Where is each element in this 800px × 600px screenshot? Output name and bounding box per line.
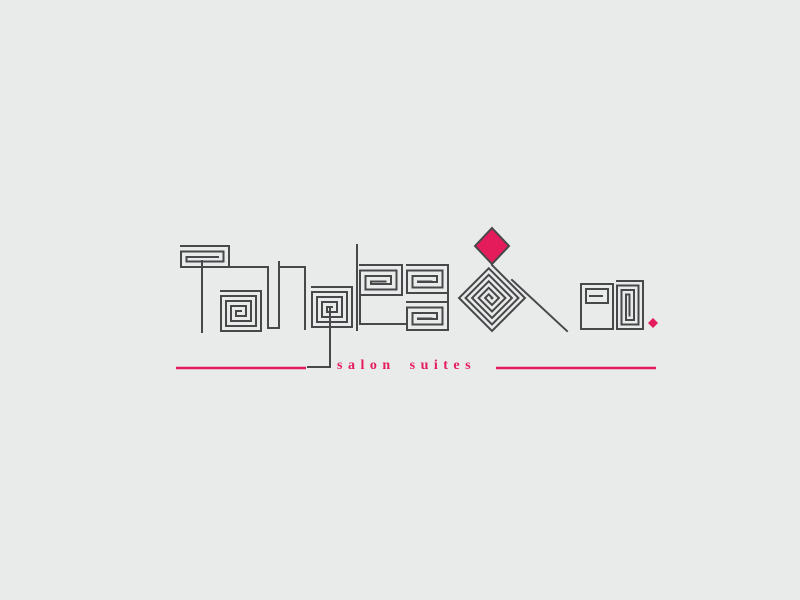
glyph-ampersand xyxy=(459,265,567,331)
glyph-n xyxy=(279,267,305,329)
ampersand-diamond-icon xyxy=(475,228,509,264)
glyph-g xyxy=(308,287,352,367)
glyph-a xyxy=(221,262,279,331)
logo-canvas: salon suites xyxy=(0,0,800,600)
period-diamond-icon xyxy=(648,318,658,328)
letterforms-group xyxy=(181,245,643,367)
glyph-c xyxy=(581,284,613,329)
glyph-s xyxy=(407,265,448,330)
tangles-logo xyxy=(0,0,800,600)
glyph-e xyxy=(360,265,405,324)
glyph-o xyxy=(617,281,643,329)
tagline-text: salon suites xyxy=(337,359,476,373)
ampersand-flourish-line xyxy=(512,280,567,331)
glyph-t xyxy=(181,246,268,332)
